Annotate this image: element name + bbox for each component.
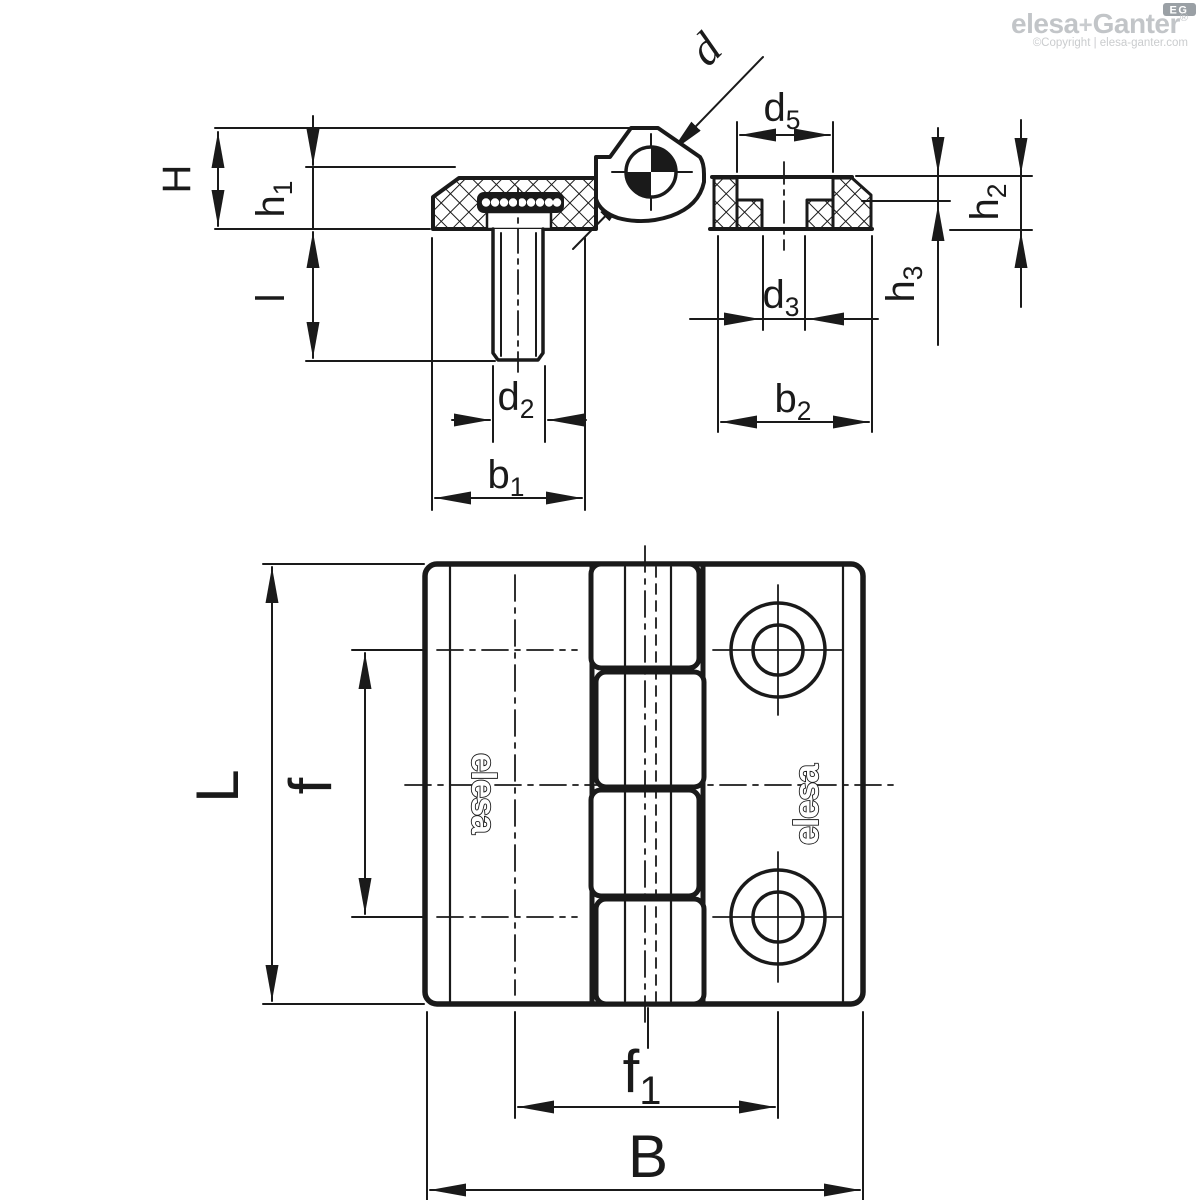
dim-label-d5: d5 [764, 86, 801, 135]
dim-label-l: l [249, 294, 293, 303]
hinge-body: elesa elesa [405, 546, 900, 1022]
dim-label-B: B [628, 1123, 668, 1190]
dim-label-f: f [277, 777, 344, 794]
copyright-text: ©Copyright | elesa-ganter.com [1033, 37, 1188, 49]
front-view: elesa elesa L f f1 B [184, 546, 900, 1200]
dim-label-h1: h1 [249, 181, 298, 218]
hinge-barrel [591, 546, 704, 1022]
dim-label-h3: h3 [879, 266, 928, 303]
knuckle-2 [596, 672, 704, 787]
knuckle-4 [596, 899, 704, 1004]
side-view-labels: H h1 l d d5 d2 b1 d3 b2 h2 h3 [155, 22, 1012, 502]
dim-label-H: H [155, 165, 199, 194]
dim-label-h2: h2 [963, 184, 1012, 221]
left-leaf-section [433, 178, 596, 229]
molded-logo-right: elesa [788, 763, 826, 845]
right-leaf-section [710, 162, 872, 250]
side-section-view: H h1 l d d5 d2 b1 d3 b2 h2 h3 [155, 22, 1032, 510]
technical-drawing-page: EG elesa+Ganter® ©Copyright | elesa-gant… [0, 0, 1200, 1200]
watermark-logo: EG elesa+Ganter® ©Copyright | elesa-gant… [1011, 3, 1196, 49]
dim-label-d3: d3 [763, 273, 800, 322]
dim-label-b1: b1 [488, 453, 525, 502]
dim-label-d: d [679, 22, 732, 75]
brand-wordmark: elesa+Ganter® [1011, 8, 1188, 39]
dim-label-b2: b2 [775, 377, 812, 426]
screw-head-pocket [487, 212, 551, 229]
hinge-technical-drawing: EG elesa+Ganter® ©Copyright | elesa-gant… [0, 0, 1200, 1200]
dim-label-d2: d2 [498, 375, 535, 424]
molded-logo-left: elesa [464, 753, 502, 835]
dim-label-f1: f1 [623, 1038, 662, 1113]
insert-knurl-dots [482, 198, 561, 206]
hinge-knuckle-section [596, 128, 704, 221]
dim-label-L: L [184, 769, 251, 802]
